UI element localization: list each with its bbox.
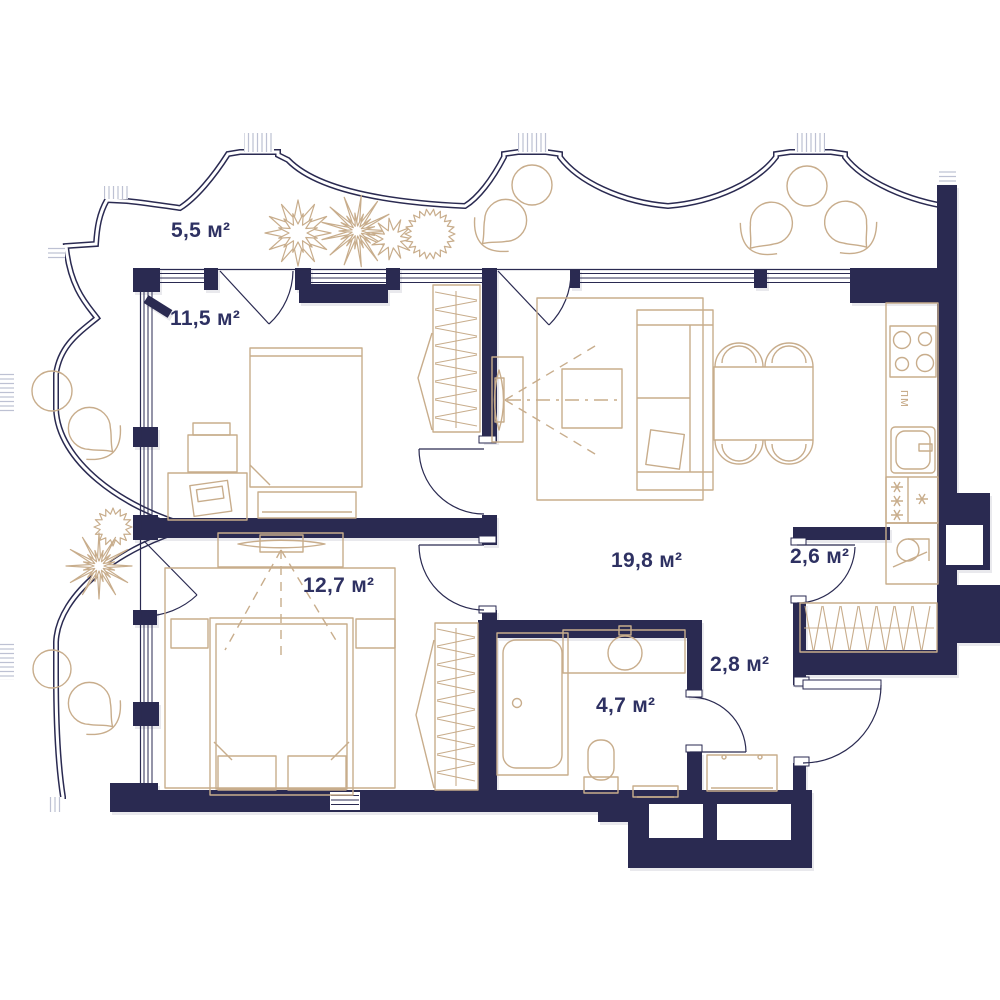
balcony-table-icon bbox=[33, 650, 71, 688]
bench-icon bbox=[258, 492, 356, 518]
rug-icon bbox=[165, 568, 395, 788]
room-label-balcony: 5,5 м² bbox=[171, 219, 230, 243]
balcony-chair-icon bbox=[814, 191, 886, 264]
nightstand-icon bbox=[356, 619, 395, 648]
room-label-bathroom: 4,7 м² bbox=[596, 694, 655, 718]
room-label-storage: 2,6 м² bbox=[790, 545, 849, 569]
bed-icon bbox=[210, 618, 353, 795]
wardrobe-rail-icon bbox=[804, 606, 934, 650]
room-label-hallway: 2,8 м² bbox=[710, 653, 769, 677]
nightstand-icon bbox=[171, 619, 208, 648]
room-label-living-kitchen: 19,8 м² bbox=[611, 549, 682, 573]
balcony-table-icon bbox=[512, 165, 552, 205]
dining-chair-icon bbox=[715, 343, 763, 367]
console-table-icon bbox=[707, 755, 777, 791]
balcony-chair-icon bbox=[731, 192, 803, 265]
hallway-furniture bbox=[707, 755, 777, 791]
storage-furniture bbox=[800, 603, 937, 652]
balcony-chair-icon bbox=[58, 397, 131, 470]
dining-chair-icon bbox=[765, 343, 813, 367]
kitchen-furniture bbox=[886, 303, 938, 584]
plant-icon bbox=[372, 218, 413, 260]
walls bbox=[110, 185, 1000, 868]
room-label-bedroom-small: 11,5 м² bbox=[170, 307, 240, 331]
laundry-icon bbox=[886, 477, 938, 523]
fridge-icon bbox=[886, 523, 938, 584]
laptop-icon bbox=[190, 480, 232, 516]
balcony-table-icon bbox=[32, 371, 72, 411]
dining-chair-icon bbox=[765, 440, 813, 464]
fridge-glyph-icon bbox=[893, 539, 929, 567]
bedroom-large-furniture bbox=[165, 533, 478, 795]
plant-icon bbox=[405, 209, 455, 258]
desk-icon bbox=[168, 473, 247, 520]
basin-icon bbox=[608, 636, 642, 670]
living-room-furniture bbox=[492, 298, 813, 500]
coffee-table-icon bbox=[562, 369, 622, 428]
pillow-icon bbox=[288, 756, 346, 790]
floor-plan: 5,5 м² 11,5 м² 12,7 м² 19,8 м² 2,6 м² 2,… bbox=[0, 0, 1000, 1000]
chair-back-icon bbox=[193, 423, 230, 435]
tv-icon bbox=[238, 540, 325, 548]
dining-table-icon bbox=[714, 367, 813, 440]
dining-chair-icon bbox=[715, 440, 763, 464]
pillow-icon bbox=[218, 756, 276, 790]
sofa-icon bbox=[637, 310, 713, 490]
floor-plan-drawing bbox=[0, 0, 1000, 1000]
wardrobe-rail-icon bbox=[437, 628, 475, 786]
toilet-icon bbox=[588, 740, 614, 780]
room-label-bedroom-large: 12,7 м² bbox=[303, 574, 374, 598]
dishwasher-label: пм bbox=[898, 390, 913, 408]
chair-icon bbox=[188, 435, 237, 472]
bathroom-furniture bbox=[497, 626, 685, 797]
wardrobe-rail-icon bbox=[435, 291, 477, 428]
bed-icon bbox=[250, 348, 362, 487]
bathtub-icon bbox=[497, 633, 568, 775]
balcony-table-icon bbox=[787, 166, 827, 206]
balcony-chair-icon bbox=[58, 672, 131, 745]
cushion-icon bbox=[646, 430, 685, 469]
